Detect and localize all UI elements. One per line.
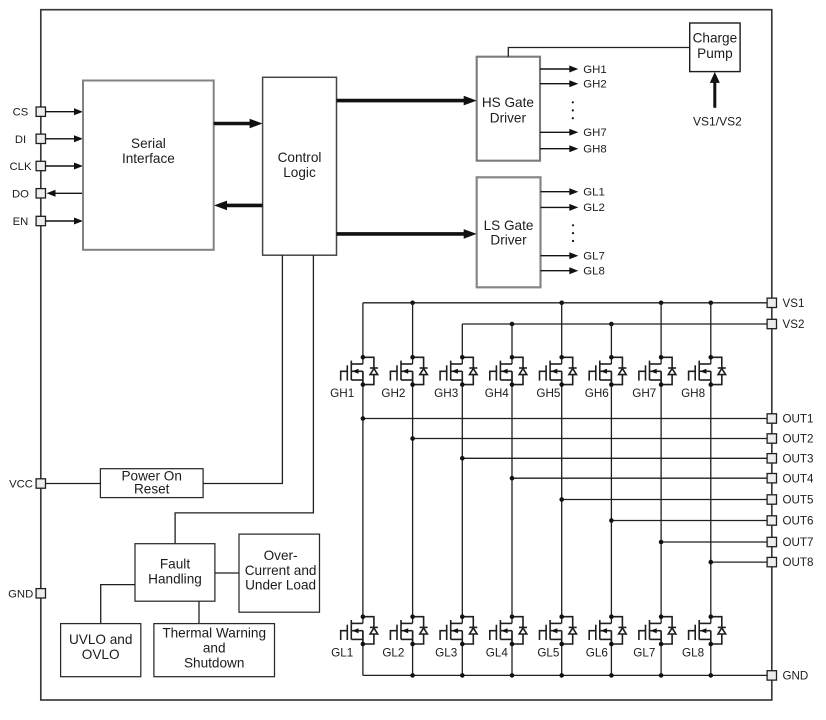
svg-text:Reset: Reset	[134, 482, 170, 497]
svg-text:GH6: GH6	[585, 387, 609, 400]
svg-text:GL2: GL2	[382, 646, 404, 659]
svg-text:GH1: GH1	[330, 387, 354, 400]
svg-text:GL1: GL1	[583, 187, 605, 199]
svg-text:GL5: GL5	[537, 646, 560, 659]
svg-text:VS1: VS1	[783, 297, 805, 310]
svg-text:Over-: Over-	[264, 548, 298, 563]
svg-text:VCC: VCC	[9, 479, 33, 491]
svg-text:Driver: Driver	[490, 110, 527, 125]
svg-text:OUT5: OUT5	[783, 494, 814, 507]
svg-text:CLK: CLK	[10, 161, 32, 173]
svg-text:GH1: GH1	[583, 64, 606, 76]
svg-text:Fault: Fault	[160, 557, 190, 572]
svg-text:GH8: GH8	[681, 387, 705, 400]
svg-text:OUT1: OUT1	[783, 413, 814, 426]
svg-text:CS: CS	[13, 107, 29, 119]
svg-text:GH3: GH3	[434, 387, 458, 400]
svg-text:VS2: VS2	[783, 318, 805, 331]
svg-text:OVLO: OVLO	[82, 647, 120, 662]
svg-text:OUT8: OUT8	[783, 556, 814, 569]
svg-text:DI: DI	[15, 134, 26, 146]
svg-text:GH7: GH7	[583, 127, 606, 139]
svg-text:GH4: GH4	[485, 387, 510, 400]
svg-text:GH5: GH5	[536, 387, 561, 400]
svg-text:Serial: Serial	[131, 136, 166, 151]
svg-text:VS1/VS2: VS1/VS2	[693, 115, 742, 129]
svg-text:OUT7: OUT7	[783, 536, 814, 549]
svg-text:and: and	[203, 641, 226, 656]
svg-text:GH2: GH2	[381, 387, 405, 400]
svg-text:HS Gate: HS Gate	[482, 95, 534, 110]
svg-text:EN: EN	[13, 216, 29, 228]
svg-text:Thermal Warning: Thermal Warning	[162, 626, 266, 641]
svg-text:GH7: GH7	[632, 387, 656, 400]
svg-text:Charge: Charge	[693, 31, 738, 46]
svg-text:GL7: GL7	[583, 251, 605, 263]
svg-text:Current and: Current and	[245, 563, 317, 578]
svg-text:GH2: GH2	[583, 79, 606, 91]
svg-text:Pump: Pump	[697, 46, 733, 61]
svg-text:OUT4: OUT4	[783, 472, 814, 485]
svg-text:Under Load: Under Load	[245, 578, 316, 593]
svg-text:Handling: Handling	[148, 572, 202, 587]
svg-text:GL4: GL4	[486, 646, 509, 659]
svg-text:OUT2: OUT2	[783, 433, 814, 446]
svg-text:GND: GND	[783, 670, 809, 683]
svg-text:UVLO and: UVLO and	[69, 632, 132, 647]
svg-text:Driver: Driver	[490, 232, 527, 247]
svg-text:GL2: GL2	[583, 202, 605, 214]
svg-text:GL7: GL7	[633, 646, 655, 659]
svg-text:OUT6: OUT6	[783, 515, 814, 528]
svg-text:GL8: GL8	[682, 646, 704, 659]
svg-text:DO: DO	[12, 188, 29, 200]
svg-text:GND: GND	[8, 588, 33, 600]
svg-text:OUT3: OUT3	[783, 452, 814, 465]
svg-text:Control: Control	[278, 150, 322, 165]
svg-text:GL8: GL8	[583, 266, 605, 278]
svg-text:GL3: GL3	[435, 646, 457, 659]
svg-text:Logic: Logic	[283, 165, 316, 180]
svg-text:LS Gate: LS Gate	[484, 218, 534, 233]
svg-text:GL1: GL1	[331, 646, 353, 659]
svg-text:GH8: GH8	[583, 144, 606, 156]
svg-text:Interface: Interface	[122, 151, 175, 166]
svg-text:GL6: GL6	[586, 646, 608, 659]
svg-text:Shutdown: Shutdown	[184, 656, 244, 671]
